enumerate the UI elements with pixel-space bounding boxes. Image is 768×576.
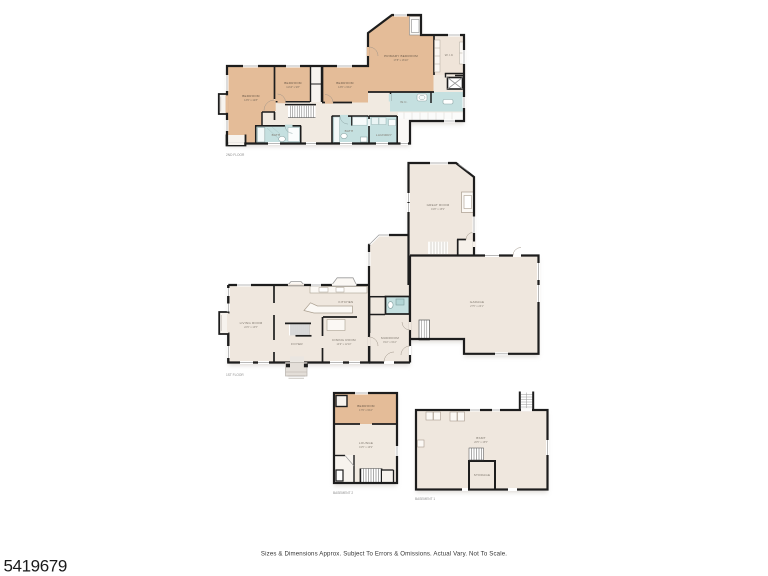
svg-text:GREAT ROOM: GREAT ROOM (427, 203, 450, 207)
svg-text:1ST FLOOR: 1ST FLOOR (226, 373, 244, 377)
svg-text:STORAGE: STORAGE (474, 473, 490, 477)
svg-text:MUDROOM: MUDROOM (381, 336, 399, 340)
svg-text:5419679: 5419679 (4, 557, 67, 576)
svg-text:LOUNGE: LOUNGE (359, 441, 373, 445)
svg-text:BATH: BATH (272, 133, 281, 137)
svg-text:11'10" x 9'8": 11'10" x 9'8" (286, 86, 300, 89)
svg-text:FOYER: FOYER (291, 342, 303, 346)
svg-text:22'9" x 13'5": 22'9" x 13'5" (244, 326, 258, 329)
svg-text:BASEMENT 2: BASEMENT 2 (333, 491, 353, 495)
svg-text:Sizes & Dimensions Approx. Sub: Sizes & Dimensions Approx. Subject To Er… (261, 550, 507, 557)
svg-text:17'9" x 9'10": 17'9" x 9'10" (359, 409, 373, 412)
svg-text:PRIMARY BEDROOM: PRIMARY BEDROOM (384, 54, 418, 58)
svg-text:BEDROOM: BEDROOM (284, 81, 302, 85)
svg-text:BEDROOM: BEDROOM (357, 404, 375, 408)
svg-text:14'9" x 12'10": 14'9" x 12'10" (336, 343, 351, 346)
svg-text:BSMT: BSMT (476, 436, 485, 440)
svg-text:BATH: BATH (345, 129, 354, 133)
svg-text:13'6" x 9'10": 13'6" x 9'10" (338, 86, 352, 89)
svg-text:13'9" x 12'8": 13'9" x 12'8" (244, 99, 258, 102)
svg-text:LIVING ROOM: LIVING ROOM (240, 321, 263, 325)
svg-text:17'8" x 16'10": 17'8" x 16'10" (393, 59, 408, 62)
svg-text:9'10" x 9'10": 9'10" x 9'10" (383, 341, 397, 344)
svg-text:2ND FLOOR: 2ND FLOOR (226, 153, 245, 157)
svg-text:BASEMENT 1: BASEMENT 1 (415, 497, 435, 501)
svg-text:BEDROOM: BEDROOM (336, 81, 354, 85)
svg-text:19'5" x 16'9": 19'5" x 16'9" (359, 446, 373, 449)
svg-text:26'5" x 15'5": 26'5" x 15'5" (474, 441, 488, 444)
svg-text:W.I.C: W.I.C (445, 53, 454, 57)
svg-text:W.C.: W.C. (400, 100, 408, 104)
svg-text:KITCHEN: KITCHEN (339, 300, 354, 304)
svg-text:19'8" x 15'9": 19'8" x 15'9" (431, 208, 445, 211)
svg-text:DINING ROOM: DINING ROOM (332, 338, 356, 342)
svg-text:LAUNDRY: LAUNDRY (376, 133, 392, 137)
svg-text:GARAGE: GARAGE (470, 300, 484, 304)
svg-text:BEDROOM: BEDROOM (242, 94, 260, 98)
svg-text:27'5" x 23'1": 27'5" x 23'1" (470, 305, 484, 308)
